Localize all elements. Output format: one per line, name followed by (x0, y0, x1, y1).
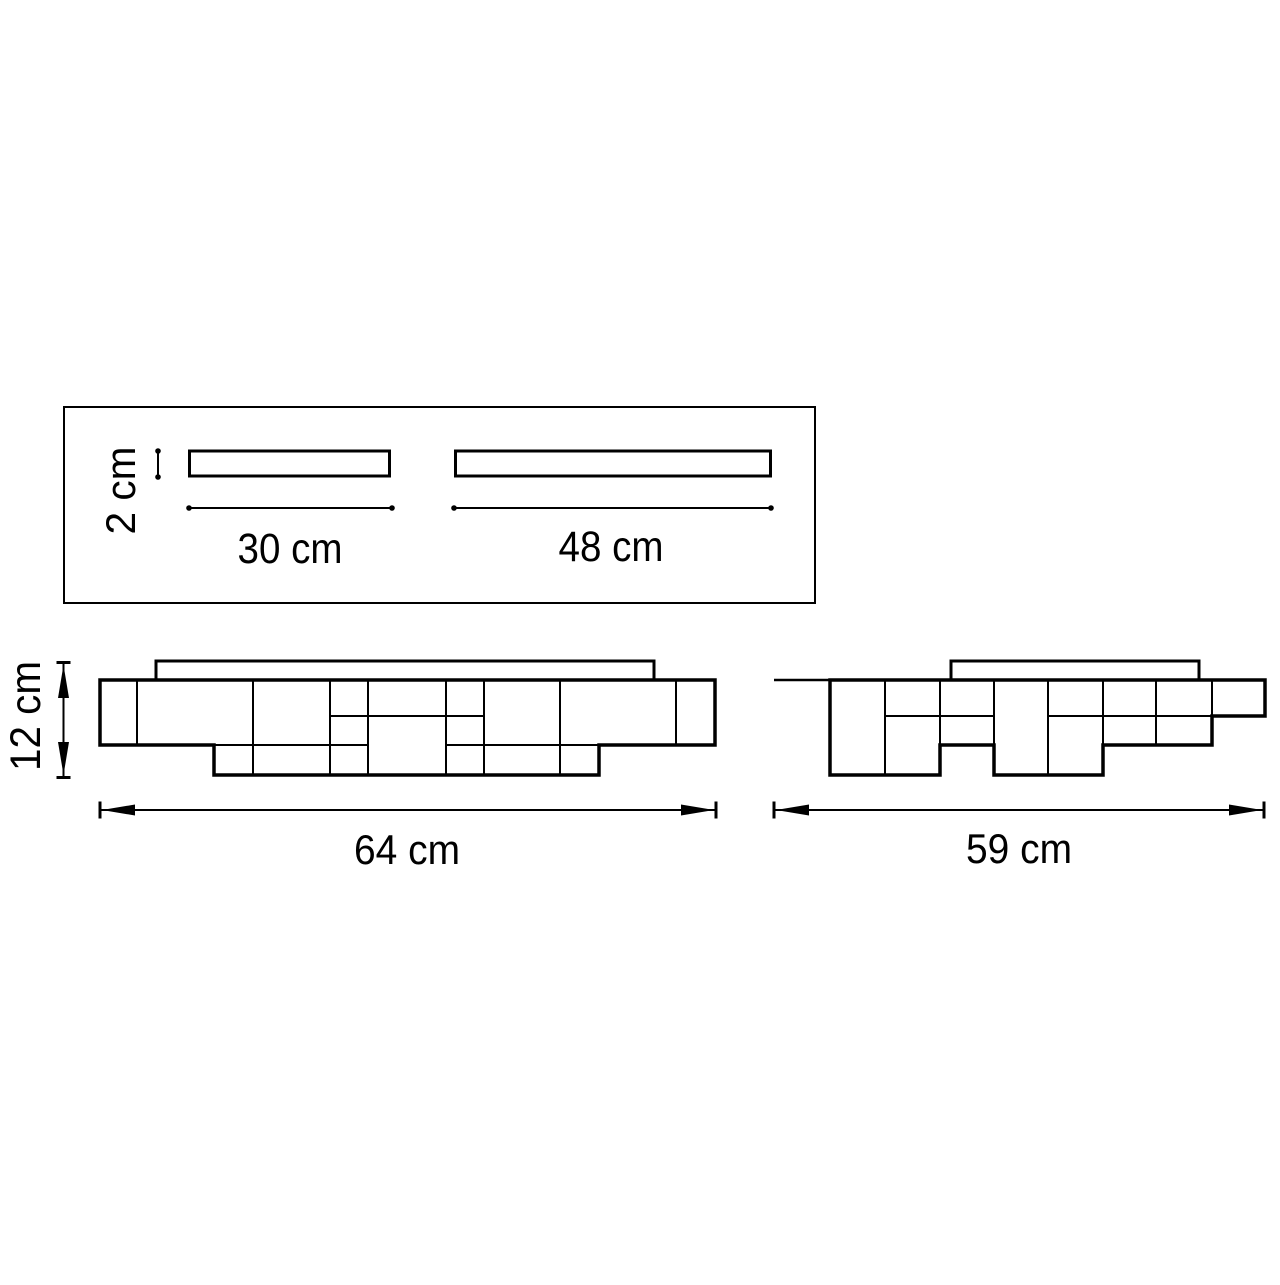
svg-text:2 cm: 2 cm (97, 447, 144, 535)
svg-text:64 cm: 64 cm (354, 826, 460, 873)
svg-text:48 cm: 48 cm (559, 523, 664, 571)
svg-text:30 cm: 30 cm (238, 525, 343, 573)
svg-text:59 cm: 59 cm (966, 825, 1072, 872)
svg-text:12 cm: 12 cm (2, 661, 50, 771)
